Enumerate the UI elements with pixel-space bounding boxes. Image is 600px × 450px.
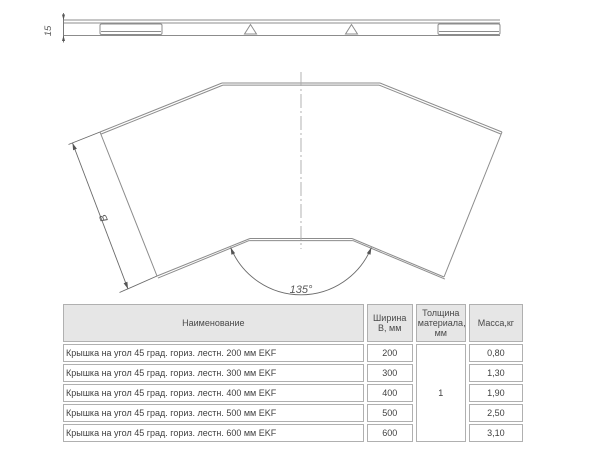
name-cell: Крышка на угол 45 град. гориз. лестн. 30… (63, 364, 364, 382)
name-cell: Крышка на угол 45 град. гориз. лестн. 40… (63, 384, 364, 402)
name-cell: Крышка на угол 45 град. гориз. лестн. 60… (63, 424, 364, 442)
width-cell: 500 (367, 404, 413, 422)
name-cell: Крышка на угол 45 град. гориз. лестн. 20… (63, 344, 364, 362)
thickness-dimension-label: 15 (43, 25, 54, 36)
angle-dimension-label: 135° (290, 284, 313, 296)
thickness-cell: 1 (416, 344, 466, 442)
left-end-edge (100, 132, 157, 276)
dim-arrow-bottom (124, 282, 128, 289)
column-header-mass: Масса,кг (469, 304, 523, 342)
catalog-drawing-page: { "drawing": { "side_view": { "thickness… (0, 0, 600, 450)
side-view (64, 20, 500, 36)
header-row: Наименование Ширина В, мм Толщина матери… (63, 304, 523, 342)
right-end-edge (444, 132, 502, 277)
mass-cell: 3,10 (469, 424, 523, 442)
column-header-thickness: Толщина материала, мм (416, 304, 466, 342)
arc-arrow-right (367, 247, 372, 254)
width-cell: 600 (367, 424, 413, 442)
spec-table: Наименование Ширина В, мм Толщина матери… (60, 302, 526, 444)
extension-line-top (69, 132, 101, 145)
dim-arrow-down (62, 36, 65, 42)
width-cell: 200 (367, 344, 413, 362)
technical-drawing: 15 B (0, 0, 600, 300)
arc-arrow-left (231, 247, 236, 254)
mass-cell: 1,30 (469, 364, 523, 382)
mass-cell: 1,90 (469, 384, 523, 402)
width-cell: 300 (367, 364, 413, 382)
dim-arrow-top (73, 143, 77, 150)
column-header-name: Наименование (63, 304, 364, 342)
dim-arrow-up (62, 15, 65, 21)
name-cell: Крышка на угол 45 град. гориз. лестн. 50… (63, 404, 364, 422)
left-latch-mark (245, 25, 257, 35)
spec-table-container: Наименование Ширина В, мм Толщина матери… (60, 302, 526, 444)
right-rib (438, 24, 500, 35)
mass-cell: 2,50 (469, 404, 523, 422)
mass-cell: 0,80 (469, 344, 523, 362)
thickness-dimension: 15 (43, 13, 65, 43)
angle-dimension: 135° (231, 247, 372, 296)
column-header-width: Ширина В, мм (367, 304, 413, 342)
right-latch-mark (346, 25, 358, 35)
table-row: Крышка на угол 45 град. гориз. лестн. 20… (63, 344, 523, 362)
width-cell: 400 (367, 384, 413, 402)
left-rib (100, 24, 162, 35)
width-dimension: B (69, 132, 158, 293)
